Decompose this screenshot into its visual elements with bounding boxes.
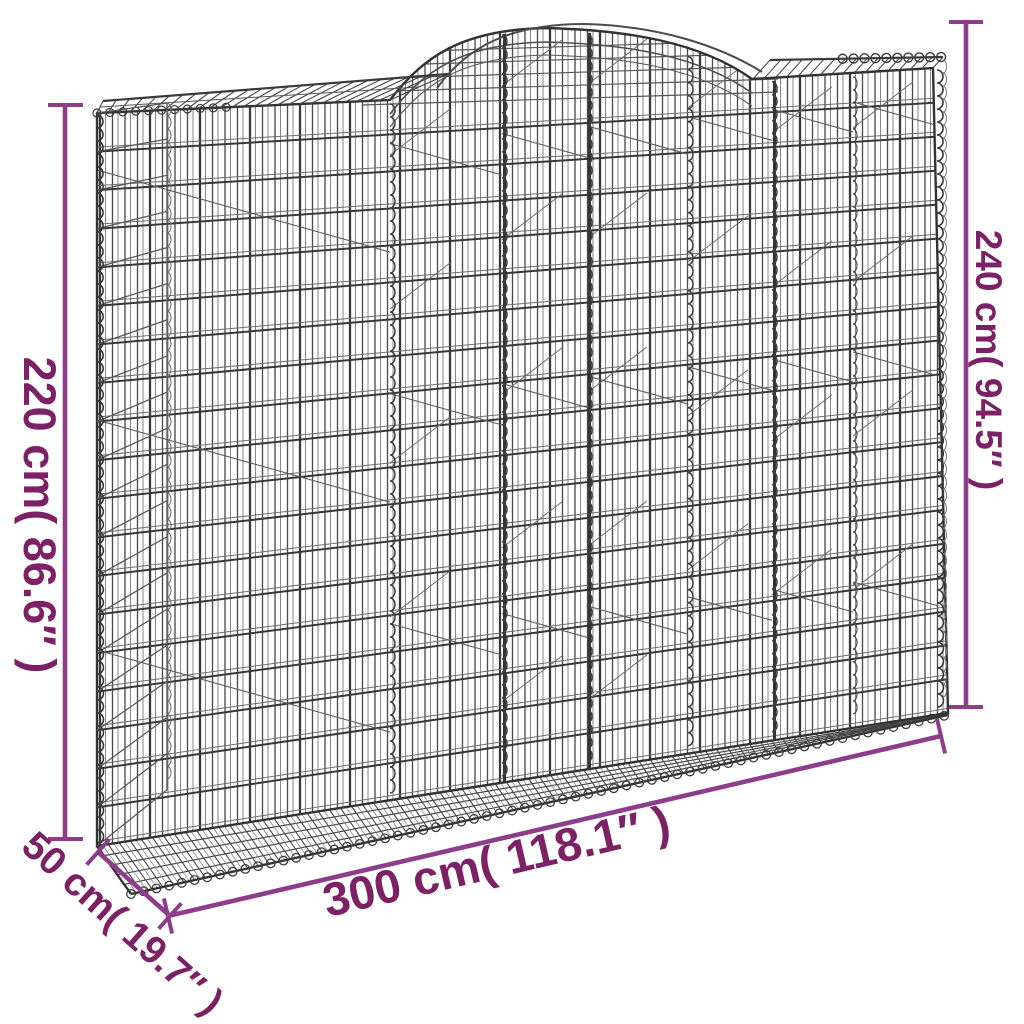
dim-height-left: 220 cm( 86.6″ )	[14, 105, 83, 839]
depth-label: 50 cm( 19.7″ )	[13, 824, 231, 1024]
height-left-label: 220 cm( 86.6″ )	[14, 357, 65, 674]
height-right-label: 240 cm( 94.5″ )	[968, 230, 1009, 490]
product-dimension-diagram: 220 cm( 86.6″ ) 240 cm( 94.5″ ) 300 cm( …	[0, 0, 1024, 1024]
dim-height-right: 240 cm( 94.5″ )	[949, 22, 1009, 707]
dimension-diagram-canvas: 220 cm( 86.6″ ) 240 cm( 94.5″ ) 300 cm( …	[0, 0, 1024, 1024]
dim-depth: 50 cm( 19.7″ )	[13, 824, 231, 1024]
